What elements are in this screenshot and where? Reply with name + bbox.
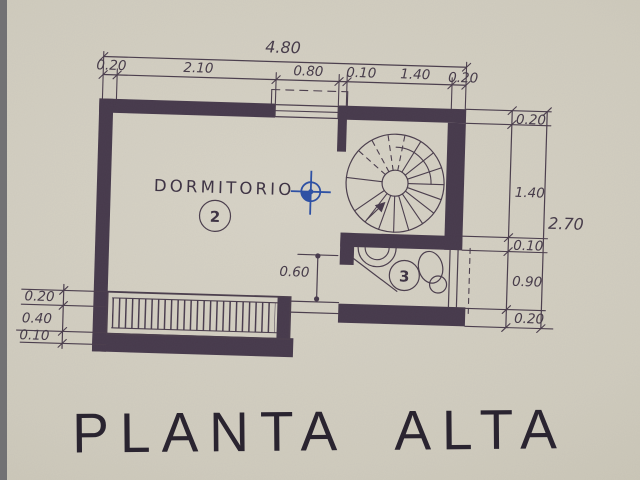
scanned-floor-plan-photo: DORMITORIO 2 3: [0, 0, 640, 480]
drawing-title: PLANTA ALTA: [0, 396, 640, 467]
